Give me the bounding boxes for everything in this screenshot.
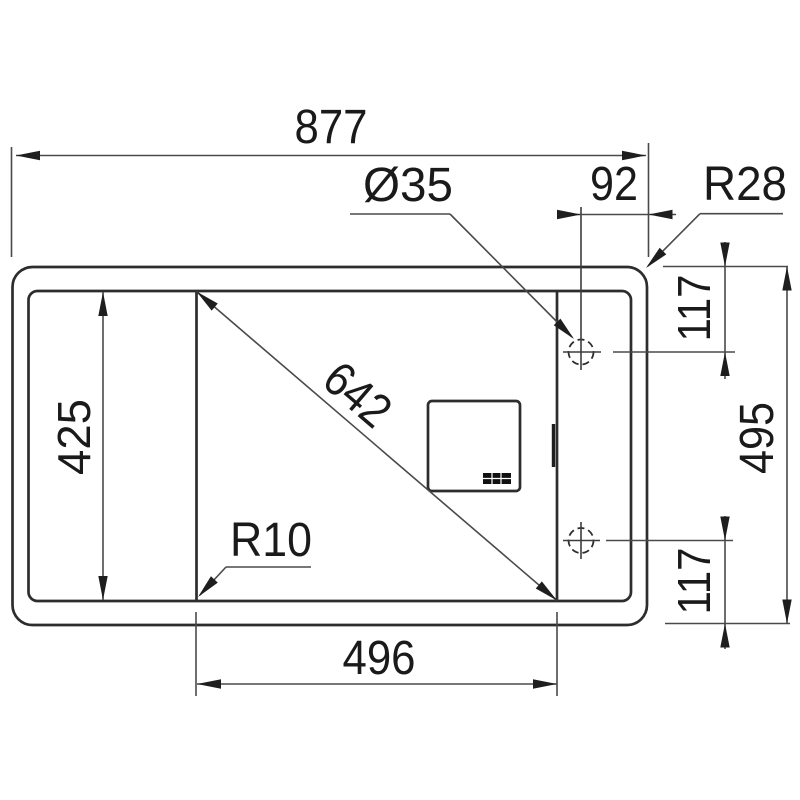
svg-text:425: 425 [48,399,100,475]
svg-text:92: 92 [590,158,638,211]
svg-text:117: 117 [668,275,720,342]
svg-text:496: 496 [343,632,416,685]
svg-text:Ø35: Ø35 [363,159,453,212]
svg-text:495: 495 [731,402,784,474]
svg-text:R10: R10 [230,514,312,567]
svg-text:877: 877 [295,101,368,154]
svg-text:117: 117 [668,548,720,615]
svg-text:R28: R28 [703,158,787,211]
